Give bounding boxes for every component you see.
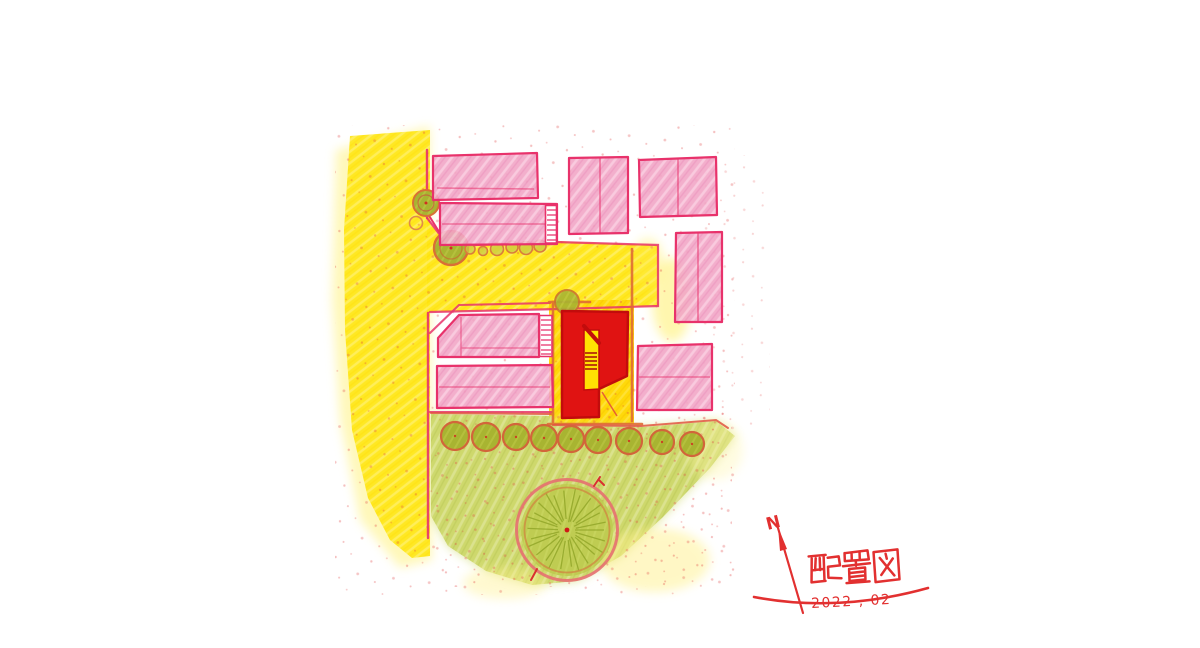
annotation-block: N 配置図 2022 , 02	[754, 512, 928, 613]
sketch-svg: N 配置図 2022 , 02	[0, 0, 1200, 648]
street-tree-center-dot	[425, 202, 428, 205]
building-top-middle	[569, 157, 628, 234]
big-tree-center-dot	[565, 528, 570, 533]
building-inner-line	[437, 188, 534, 189]
shrub-center-dot	[454, 435, 456, 437]
big-tree	[517, 477, 618, 581]
plan-date: 2022 , 02	[811, 592, 892, 612]
stair-treads	[547, 210, 556, 240]
street-tree-center-dot	[450, 247, 453, 250]
shrub-center-dot	[515, 436, 517, 438]
shrub-center-dot	[628, 440, 630, 442]
shrub-center-dot	[570, 438, 572, 440]
building-top-left-1	[433, 153, 538, 200]
north-label: N	[764, 512, 783, 535]
building-left-middle-a	[438, 314, 539, 357]
shrub-center-dot	[597, 439, 599, 441]
stair-core	[546, 206, 557, 244]
site-plan-sketch-page: N 配置図 2022 , 02	[0, 0, 1200, 648]
shrub-center-dot	[691, 443, 693, 445]
shrub-center-dot	[485, 436, 487, 438]
small-shrub	[479, 247, 488, 256]
shrub-center-dot	[543, 437, 545, 439]
shrub-center-dot	[661, 441, 663, 443]
